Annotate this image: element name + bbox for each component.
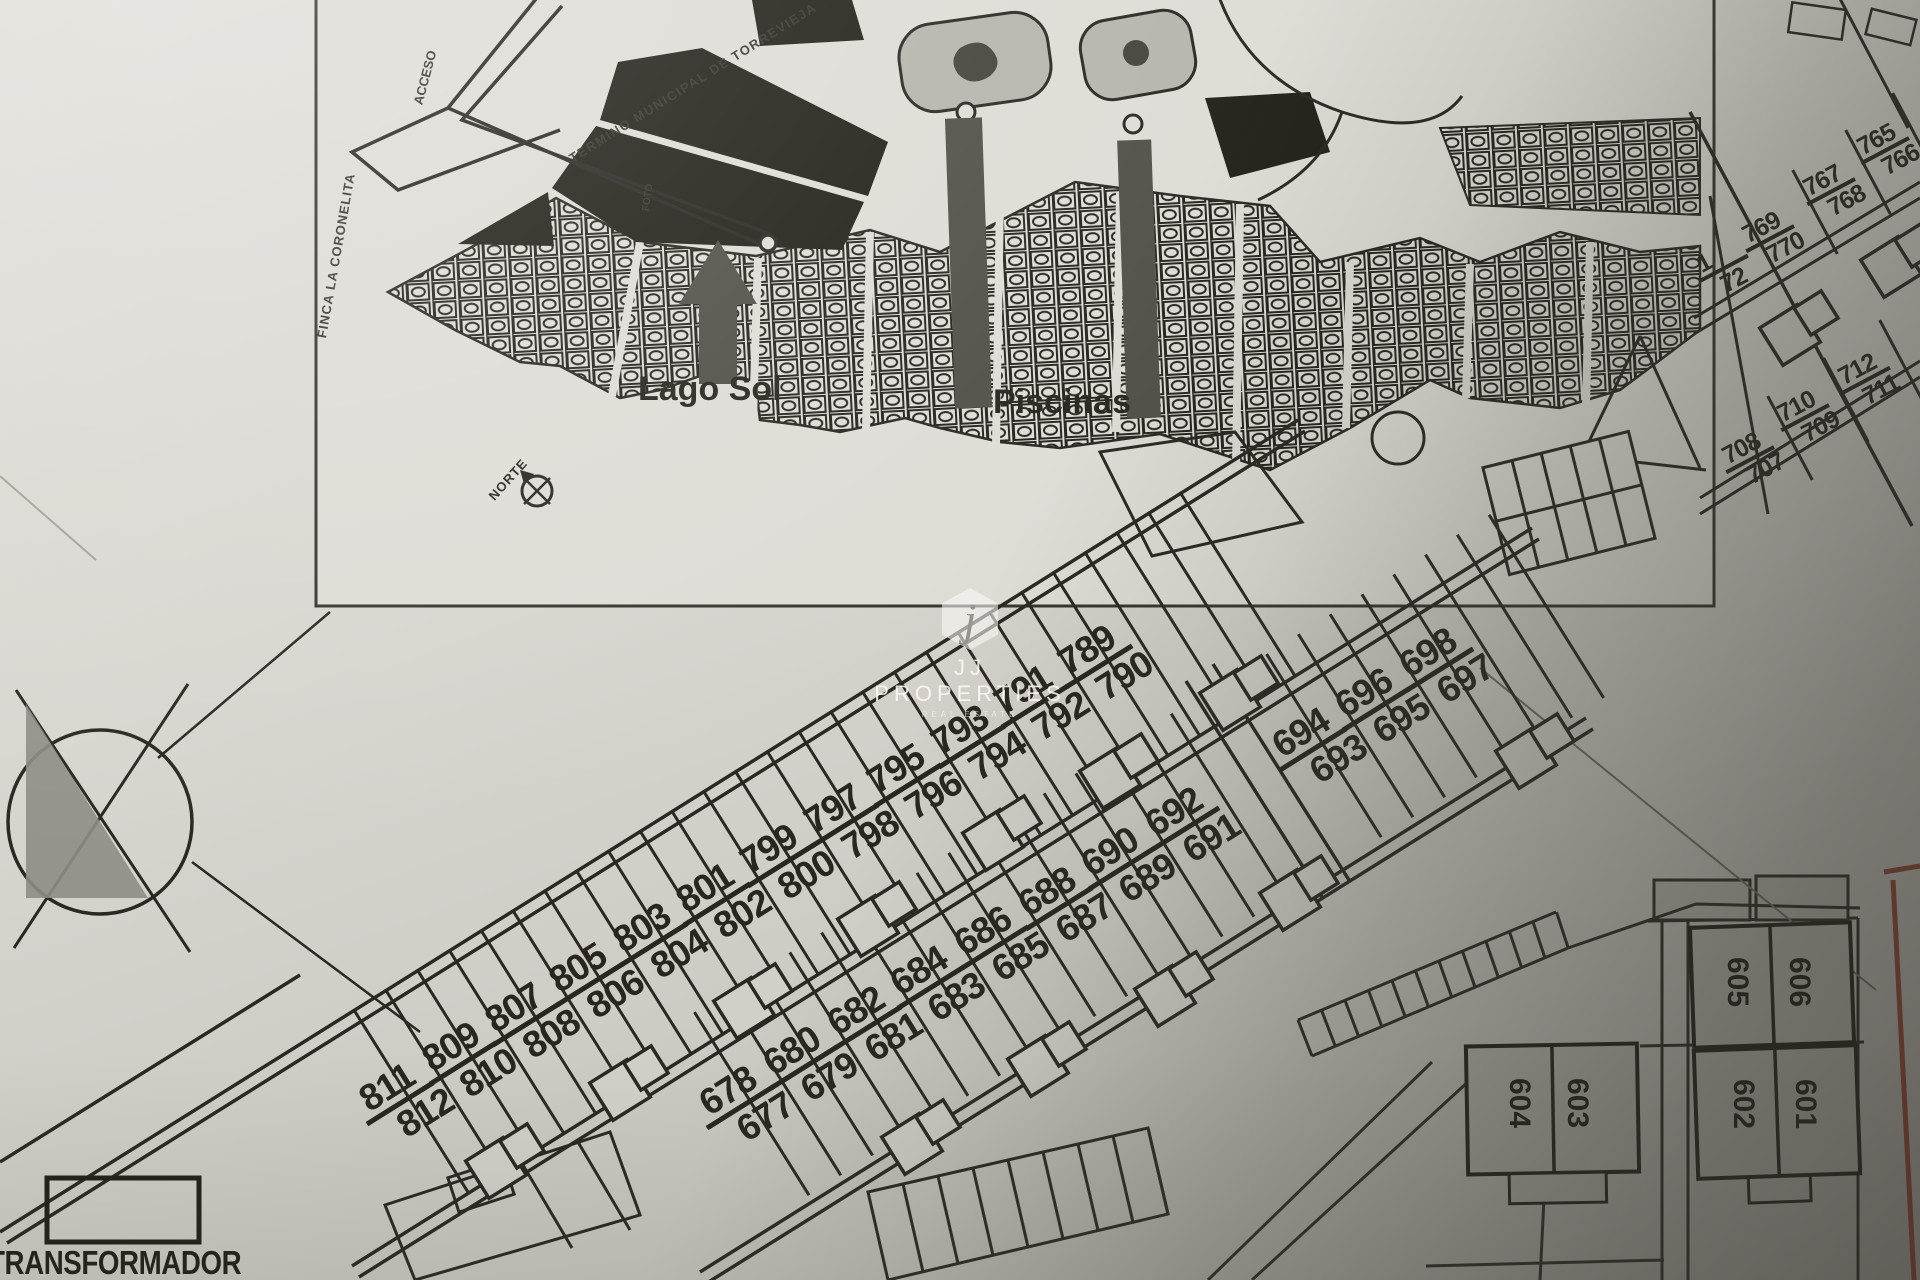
watermark-tagline: REAL ESTATE: [870, 710, 1070, 719]
access-road-label: ACCESO: [405, 27, 445, 127]
photographed-plot-plan: TERMINO MUNICIPAL DE TORREVIEJA FINCA LA…: [0, 0, 1920, 1280]
watermark: j JJ PROPERTIES REAL ESTATE: [870, 588, 1070, 719]
building-unit-number: 603: [1560, 1078, 1594, 1128]
building-unit-number: 605: [1720, 957, 1754, 1007]
plot-pair-label: 708707: [1719, 425, 1787, 492]
watermark-name: JJ PROPERTIES: [870, 655, 1070, 707]
municipal-boundary-label: TERMINO MUNICIPAL DE TORREVIEJA: [562, 0, 824, 168]
foto-label: FOTO: [638, 167, 657, 228]
finca-label: FINCA LA CORONELITA: [308, 136, 364, 375]
building-unit-number: 602: [1726, 1079, 1760, 1129]
building-unit-number: 606: [1782, 957, 1816, 1007]
building-unit-number: 601: [1788, 1079, 1822, 1129]
piscinas-label: Piscinas: [993, 383, 1131, 422]
lago-sol-label: Lago Sol: [638, 370, 782, 409]
plot-pair-label: 765766: [1854, 116, 1920, 183]
north-label: NORTE: [476, 445, 541, 514]
plot-pair-label: 767768: [1800, 157, 1868, 224]
plot-pair-label: 710709: [1774, 383, 1842, 450]
building-unit-number: 604: [1502, 1078, 1536, 1128]
transformer-label: TRANSFORMADOR: [0, 1244, 241, 1280]
watermark-logo-icon: j: [942, 588, 998, 650]
plot-pair-label: 712711: [1835, 346, 1902, 412]
